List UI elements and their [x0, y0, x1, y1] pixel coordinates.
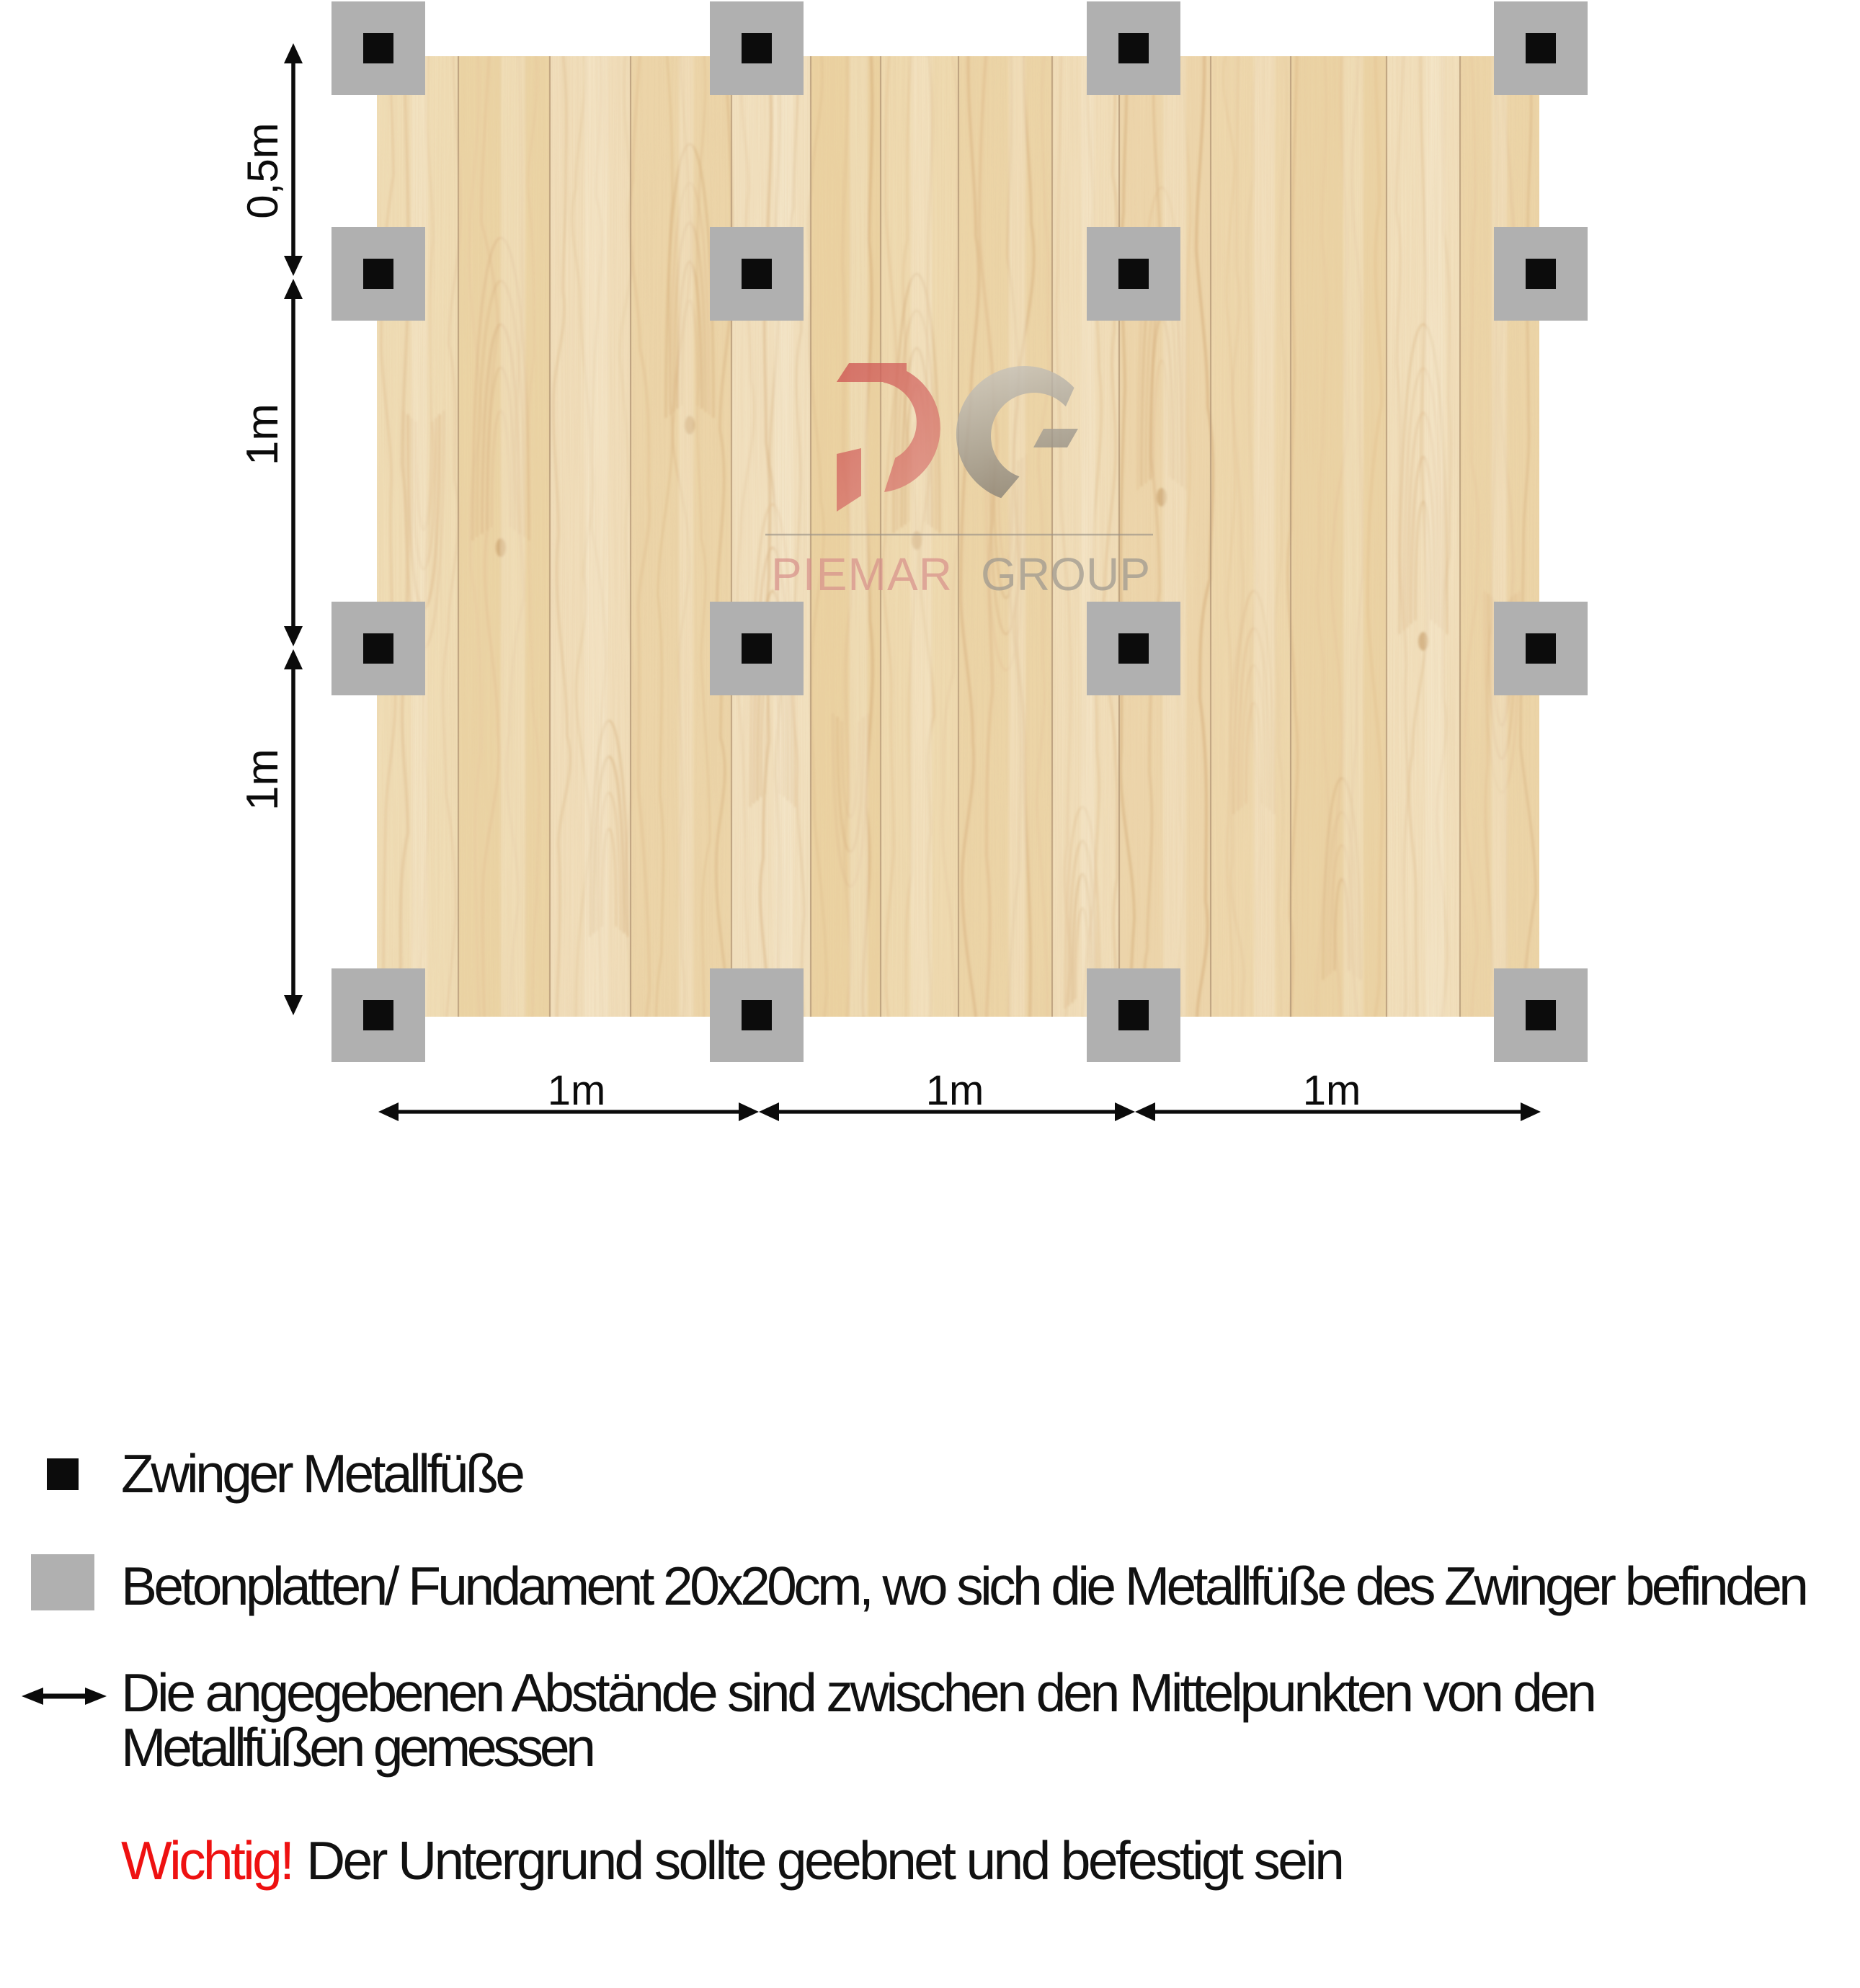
svg-text:1m: 1m: [1303, 1067, 1361, 1114]
svg-text:Betonplatten/ Fundament 20x20c: Betonplatten/ Fundament 20x20cm, wo sich…: [121, 1556, 1809, 1616]
svg-text:Wichtig!: Wichtig!: [121, 1830, 295, 1891]
svg-text:Der Untergrund sollte geebnet: Der Untergrund sollte geebnet und befest…: [306, 1830, 1345, 1891]
svg-text:0,5m: 0,5m: [239, 122, 287, 218]
svg-text:1m: 1m: [548, 1067, 606, 1114]
svg-text:GROUP: GROUP: [981, 548, 1154, 600]
svg-text:Die angegebenen Abstände sind: Die angegebenen Abstände sind zwischen d…: [121, 1662, 1597, 1723]
svg-text:1m: 1m: [238, 749, 288, 811]
svg-text:1m: 1m: [238, 404, 288, 465]
svg-text:1m: 1m: [926, 1067, 984, 1114]
svg-text:Zwinger Metallfüße: Zwinger Metallfüße: [121, 1443, 525, 1504]
svg-text:PIEMAR: PIEMAR: [771, 548, 956, 600]
svg-text:Metallfüßen gemessen: Metallfüßen gemessen: [121, 1717, 596, 1778]
